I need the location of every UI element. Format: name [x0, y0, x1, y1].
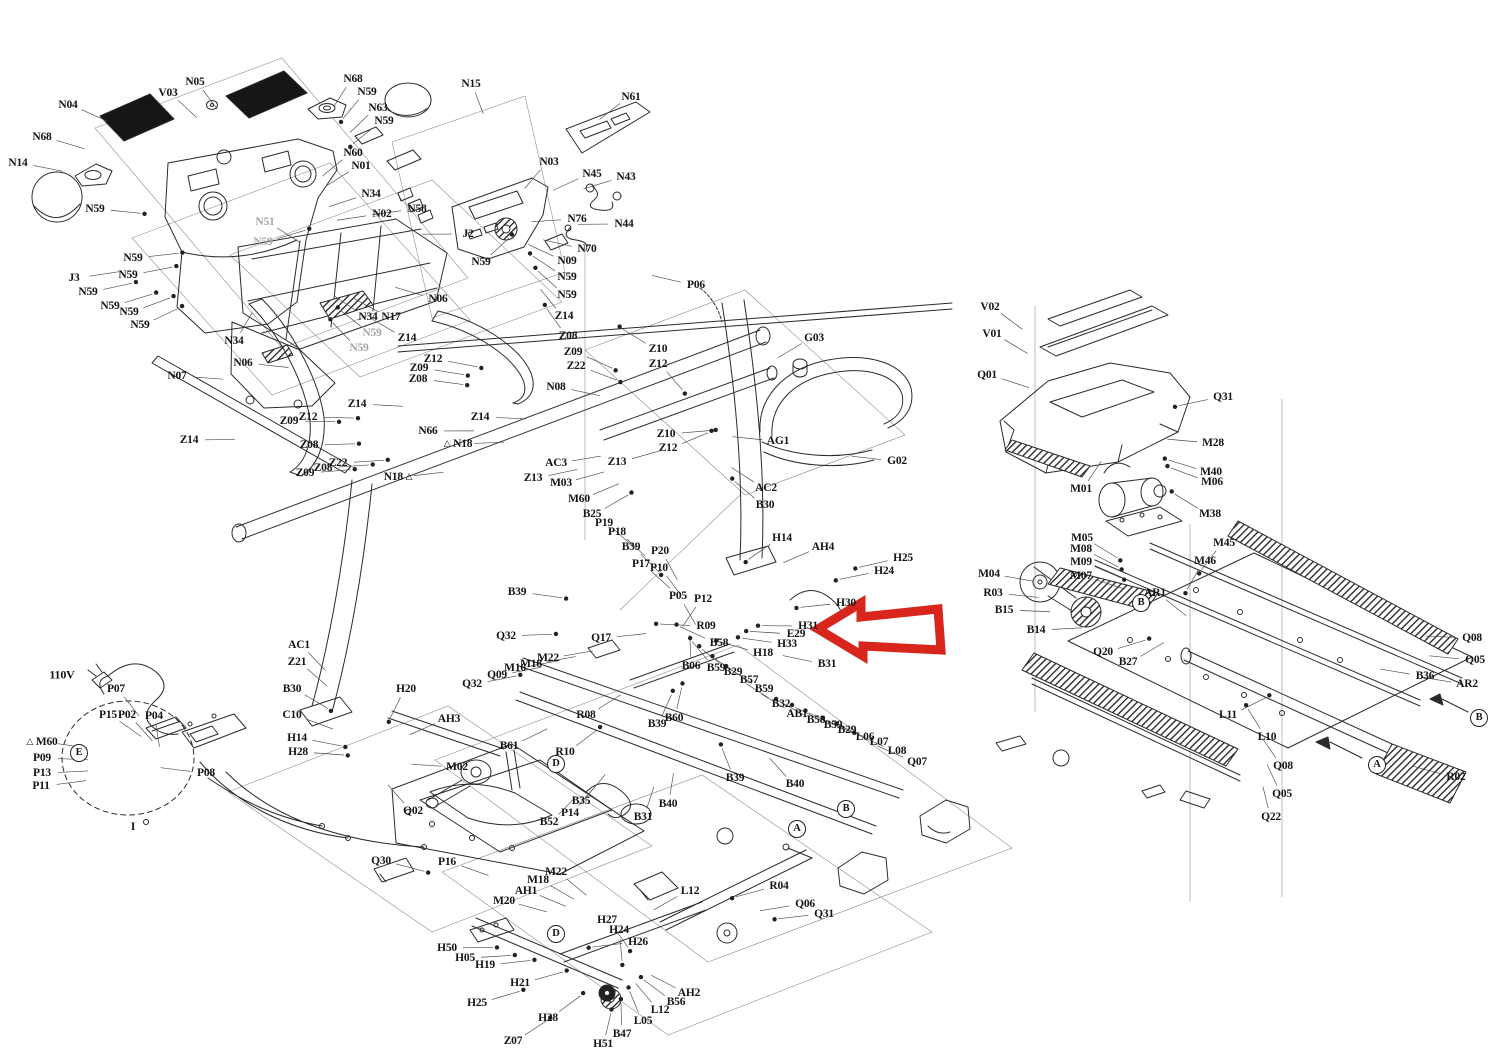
part-label: P12 [694, 593, 712, 605]
part-label: Z14 [348, 398, 367, 410]
part-label: H24 [874, 565, 894, 577]
part-label: Q31 [1213, 391, 1233, 403]
part-label: AC2 [755, 482, 777, 494]
part-label: Q22 [1261, 811, 1281, 823]
part-label: Q07 [907, 756, 927, 768]
part-label: Z08 [300, 439, 319, 451]
part-label: B15 [995, 604, 1014, 616]
part-label: Q32 [496, 630, 516, 642]
parts-diagram-canvas: N04N68N14N59V03N05N68N59N63N59N15N60N01N… [0, 0, 1500, 1060]
part-label: P16 [438, 856, 456, 868]
part-label: R02 [1446, 771, 1465, 783]
part-label: B39 [648, 718, 667, 730]
part-label: H50 [437, 942, 457, 954]
part-label: B31 [634, 811, 653, 823]
part-label: N01 [351, 160, 370, 172]
part-label: B35 [572, 795, 591, 807]
part-label: B58 [807, 714, 826, 726]
part-label: N59 [118, 269, 137, 281]
part-label: M06 [1201, 476, 1223, 488]
part-label: Z14 [398, 332, 417, 344]
part-label: N59 [253, 236, 272, 248]
callout-letter: D [547, 925, 565, 943]
part-label: Z12 [299, 411, 318, 423]
part-label: N04 [58, 99, 77, 111]
part-label: N34 [361, 188, 380, 200]
callout-letter: A [788, 820, 806, 838]
part-label: M20 [493, 895, 515, 907]
part-label: N34 [358, 311, 377, 323]
parts-art [32, 71, 1472, 1009]
part-label: Z09 [296, 467, 315, 479]
part-label: Q30 [371, 855, 391, 867]
part-label: M08 [1070, 543, 1092, 555]
part-label: R09 [696, 620, 715, 632]
part-label: AH2 [678, 987, 700, 999]
part-label: P17 [632, 558, 650, 570]
part-label: P13 [33, 767, 51, 779]
part-label: Z10 [649, 343, 668, 355]
part-label: M16 [504, 662, 526, 674]
leader-lines [33, 87, 1459, 1035]
pad-n04 [100, 94, 174, 141]
part-label: B60 [665, 712, 684, 724]
part-label: N06 [428, 293, 447, 305]
part-label: M09 [1070, 556, 1092, 568]
part-label: AR2 [1456, 678, 1478, 690]
part-label: P20 [651, 545, 669, 557]
part-label: Z10 [657, 428, 676, 440]
part-label: M28 [1202, 437, 1224, 449]
pad-n05 [226, 71, 307, 118]
part-label: AH4 [812, 541, 834, 553]
callout-letter: B [1470, 709, 1488, 727]
part-label: P15 [99, 709, 117, 721]
part-label: M02 [446, 761, 468, 773]
part-label: B39 [726, 772, 745, 784]
part-label: N59 [349, 342, 368, 354]
part-label: Q06 [795, 898, 815, 910]
part-label: N43 [616, 171, 635, 183]
part-label: L08 [888, 745, 907, 757]
part-label: AH3 [438, 713, 460, 725]
part-label: N08 [546, 381, 565, 393]
part-label: B40 [786, 778, 805, 790]
part-label: M04 [978, 568, 1000, 580]
part-label: J2 [462, 228, 473, 240]
part-label: AC1 [288, 639, 310, 651]
part-label: AC3 [545, 457, 567, 469]
part-label: Q32 [462, 678, 482, 690]
part-label: N59 [362, 327, 381, 339]
part-label: B36 [1416, 670, 1435, 682]
part-label: P14 [561, 807, 579, 819]
part-label: M46 [1194, 555, 1216, 567]
motor-m01 [1099, 483, 1125, 517]
part-label: P07 [107, 683, 125, 695]
part-label: B40 [659, 798, 678, 810]
part-label: N59 [123, 252, 142, 264]
part-label: N14 [8, 157, 27, 169]
part-label: H24 [609, 924, 629, 936]
part-label: Z08 [314, 462, 333, 474]
part-label: N45 [582, 168, 601, 180]
part-label: L10 [1258, 731, 1277, 743]
part-label: H20 [396, 683, 416, 695]
part-label: Z14 [180, 434, 199, 446]
endcap-q07 [920, 800, 970, 843]
tray-q02 [392, 744, 644, 874]
part-label: M45 [1213, 537, 1235, 549]
part-label: G03 [804, 332, 824, 344]
part-label: N51 [255, 216, 274, 228]
part-label: B06 [682, 660, 701, 672]
cup-n14 [32, 172, 82, 222]
part-label: P11 [32, 780, 49, 792]
part-label: B30 [283, 683, 302, 695]
part-label: Z08 [409, 373, 428, 385]
part-label: L05 [634, 1015, 653, 1027]
part-label: G02 [887, 455, 907, 467]
callout-letter: A [1368, 756, 1386, 774]
part-label: H30 [836, 597, 856, 609]
diagram-line-art [0, 0, 1500, 1060]
part-label: N59 [130, 319, 149, 331]
part-label: H33 [777, 638, 797, 650]
part-label: P05 [669, 590, 687, 602]
part-label: N15 [461, 78, 480, 90]
part-label: Z12 [649, 358, 668, 370]
part-label: P06 [687, 279, 705, 291]
part-label: M38 [1199, 508, 1221, 520]
part-label: Q08 [1273, 760, 1293, 772]
part-label: H25 [893, 552, 913, 564]
part-label: L11 [1219, 709, 1237, 721]
part-label: H26 [628, 936, 648, 948]
part-label: M03 [550, 477, 572, 489]
callout-letter: D [547, 755, 565, 773]
part-label: N59 [557, 271, 576, 283]
part-label: △ N18 [444, 438, 473, 450]
part-label: R08 [576, 709, 595, 721]
part-label: B61 [500, 740, 519, 752]
part-label: Z14 [555, 310, 574, 322]
part-label: M60 [568, 493, 590, 505]
part-label: B30 [756, 499, 775, 511]
part-label: B59 [755, 683, 774, 695]
part-label: Z14 [471, 411, 490, 423]
part-label: Z09 [564, 346, 583, 358]
part-label: R03 [983, 587, 1002, 599]
part-label: Z22 [567, 360, 586, 372]
callout-letter: E [70, 744, 88, 762]
part-label: Z21 [288, 656, 307, 668]
part-label: N07 [167, 370, 186, 382]
overlay-n61 [566, 102, 650, 153]
part-label: N63 [368, 102, 387, 114]
part-label: B52 [540, 816, 559, 828]
part-label: Z12 [659, 442, 678, 454]
part-label: B27 [1119, 656, 1138, 668]
part-label: N68 [32, 131, 51, 143]
part-label: N59 [357, 86, 376, 98]
part-label: B14 [1027, 624, 1046, 636]
part-label: Q05 [1465, 654, 1485, 666]
part-label: H28 [538, 1012, 558, 1024]
part-label: N44 [614, 218, 633, 230]
part-label: V01 [982, 328, 1001, 340]
part-label: Q08 [1462, 632, 1482, 644]
part-label: P10 [650, 562, 668, 574]
part-label: B59 [707, 662, 726, 674]
part-label: AG1 [767, 435, 789, 447]
part-label: N61 [621, 91, 640, 103]
part-label: H05 [455, 952, 475, 964]
part-label: H19 [475, 959, 495, 971]
part-label: N06 [233, 357, 252, 369]
power-cord [100, 664, 178, 735]
part-label: N58 [407, 203, 426, 215]
part-label: H18 [753, 647, 773, 659]
part-label: Z13 [524, 472, 543, 484]
part-label: B31 [818, 658, 837, 670]
part-label: Q17 [591, 632, 611, 644]
part-label: N59 [471, 256, 490, 268]
part-label: N59 [100, 300, 119, 312]
part-label: Q20 [1093, 646, 1113, 658]
part-label: P02 [118, 709, 136, 721]
part-label: Q01 [977, 369, 997, 381]
part-label: Q31 [814, 908, 834, 920]
part-label: B58 [710, 637, 729, 649]
part-label: Z09 [280, 415, 299, 427]
part-label: L07 [870, 736, 889, 748]
callout-letter: B [1132, 594, 1150, 612]
part-label: Q09 [487, 669, 507, 681]
part-label: N70 [577, 243, 596, 255]
part-label: 110V [49, 668, 74, 683]
part-label: N60 [343, 147, 362, 159]
part-label: I [131, 821, 135, 833]
part-label: △ M60 [26, 736, 57, 748]
part-label: H28 [288, 746, 308, 758]
part-label: N17 [381, 311, 400, 323]
part-label: V02 [980, 301, 999, 313]
part-label: N68 [343, 73, 362, 85]
part-label: N02 [372, 208, 391, 220]
part-label: AB1 [786, 708, 807, 720]
part-label: N76 [567, 213, 586, 225]
part-label: M01 [1070, 483, 1092, 495]
part-label: H21 [510, 977, 530, 989]
part-label: Z08 [559, 330, 578, 342]
part-label: N59 [78, 286, 97, 298]
part-label: P04 [145, 710, 163, 722]
part-label: P09 [33, 752, 51, 764]
part-label: B47 [613, 1028, 632, 1040]
part-label: M07 [1070, 570, 1092, 582]
part-label: H14 [287, 732, 307, 744]
part-label: Q05 [1272, 788, 1292, 800]
part-label: N59 [374, 115, 393, 127]
part-label: L12 [681, 885, 700, 897]
part-label: N59 [119, 306, 138, 318]
part-label: AH1 [515, 885, 537, 897]
part-label: B39 [622, 541, 641, 553]
part-label: H51 [593, 1038, 613, 1050]
part-label: N59 [557, 289, 576, 301]
part-label: Q02 [403, 805, 423, 817]
part-label: Z13 [608, 456, 627, 468]
part-label: B39 [508, 586, 527, 598]
part-label: N18 △ [384, 471, 413, 483]
part-label: N34 [224, 335, 243, 347]
part-label: C10 [282, 709, 301, 721]
part-label: Z07 [504, 1035, 523, 1047]
rail-strip-top [1228, 521, 1458, 654]
part-label: H14 [772, 532, 792, 544]
part-label: P18 [608, 526, 626, 538]
part-label: H25 [467, 997, 487, 1009]
part-label: N03 [539, 156, 558, 168]
part-label: N05 [185, 76, 204, 88]
part-label: N66 [418, 425, 437, 437]
part-label: B29 [838, 724, 857, 736]
part-label: N59 [85, 203, 104, 215]
part-label: N09 [557, 255, 576, 267]
highlight-arrow [818, 603, 941, 656]
part-label: R04 [769, 880, 788, 892]
part-label: P08 [197, 767, 215, 779]
callout-letter: B [837, 800, 855, 818]
part-label: V03 [158, 87, 177, 99]
part-label: J3 [68, 272, 79, 284]
